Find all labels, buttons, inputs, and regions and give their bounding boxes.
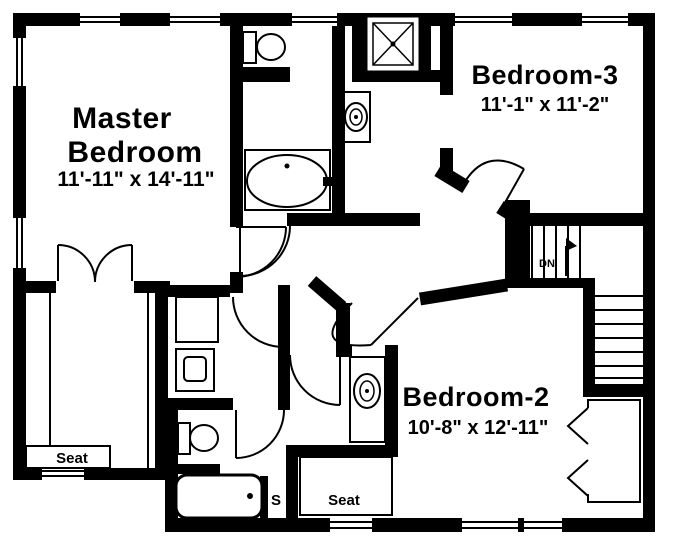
window: [462, 518, 518, 532]
dryer-icon: [176, 349, 214, 391]
master-closet-shelving: [26, 293, 148, 468]
toilet-icon: [178, 423, 218, 454]
room-dimensions: 11'-1" x 11'-2": [481, 94, 610, 116]
window: [42, 468, 84, 480]
vanity-sink-icon: [350, 357, 385, 442]
window: [524, 518, 562, 532]
master-bedroom-label: Master Bedroom 11'-11" x 14'-11": [57, 102, 214, 191]
toilet-icon: [243, 32, 285, 63]
bedroom2-seat-label: Seat: [328, 492, 360, 509]
room-dimensions: 11'-11" x 14'-11": [57, 168, 214, 191]
window: [292, 13, 337, 26]
double-door: [58, 245, 132, 282]
door: [236, 410, 284, 458]
door: [240, 226, 290, 276]
room-name: Bedroom: [67, 136, 202, 169]
door: [290, 355, 340, 405]
shelf-label: S: [271, 492, 281, 509]
door: [233, 297, 283, 347]
window: [582, 13, 628, 26]
door: [236, 227, 286, 277]
window: [13, 38, 26, 86]
closet-seat-label: Seat: [56, 450, 88, 467]
window: [455, 13, 512, 26]
bedroom3-label: Bedroom-3 11'-1" x 11'-2": [471, 60, 618, 116]
room-name: Master: [72, 102, 172, 135]
floor-plan: DN Master Bedroom 11'-11" x 14'-11" Bedr…: [0, 0, 676, 549]
room-dimensions: 10'-8" x 12'-11": [408, 417, 549, 439]
sink-icon: [343, 92, 370, 142]
room-name: Bedroom-2: [402, 382, 549, 412]
window: [80, 13, 120, 26]
floor-plan-drawing: DN Master Bedroom 11'-11" x 14'-11" Bedr…: [0, 0, 676, 549]
room-name: Bedroom-3: [471, 60, 618, 90]
bathtub-icon: [176, 475, 262, 518]
window: [330, 518, 372, 532]
stairs-down-label: DN: [539, 258, 555, 270]
bathtub-icon: [245, 150, 334, 210]
bedroom2-label: Bedroom-2 10'-8" x 12'-11": [402, 382, 549, 439]
window: [170, 13, 220, 26]
washer-icon: [176, 297, 218, 342]
window: [13, 218, 26, 268]
shower-icon: [366, 16, 420, 72]
bedroom2-closet: [568, 400, 640, 502]
